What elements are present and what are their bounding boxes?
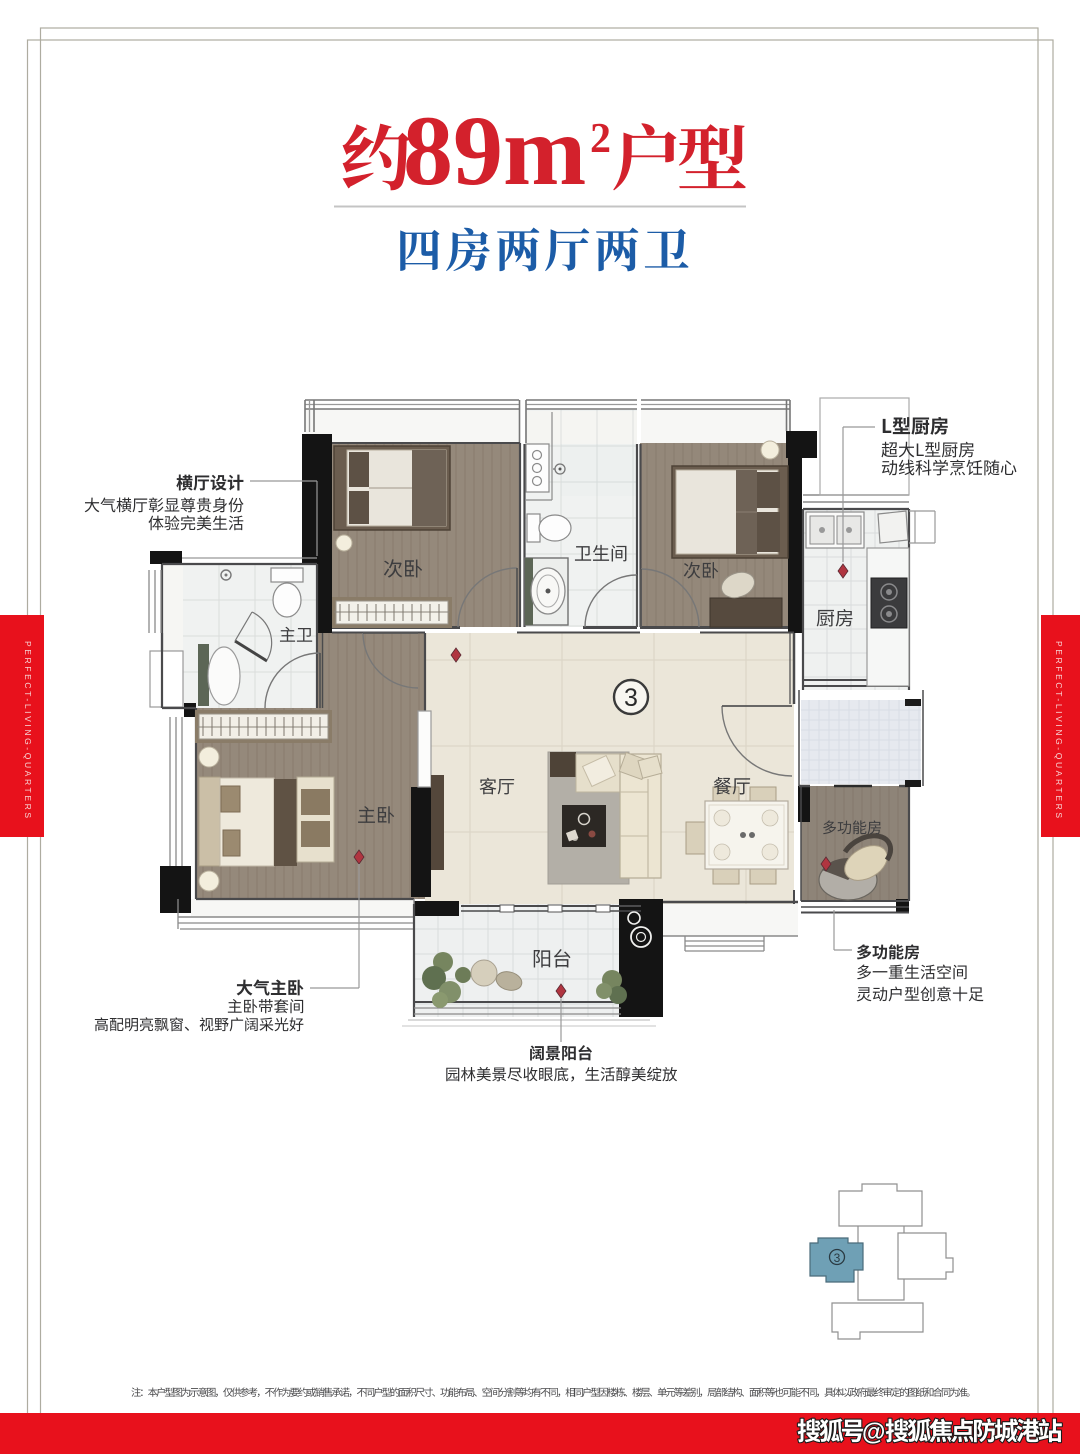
svg-text:3: 3 — [624, 684, 638, 712]
svg-text:PERFECT-LIVING-QUARTERS: PERFECT-LIVING-QUARTERS — [23, 641, 33, 821]
svg-text:3: 3 — [834, 1251, 841, 1265]
svg-text:2: 2 — [590, 116, 611, 162]
svg-text:@: @ — [862, 1419, 885, 1446]
svg-text:PERFECT-LIVING-QUARTERS: PERFECT-LIVING-QUARTERS — [1054, 641, 1064, 821]
svg-text:89m: 89m — [403, 95, 586, 206]
